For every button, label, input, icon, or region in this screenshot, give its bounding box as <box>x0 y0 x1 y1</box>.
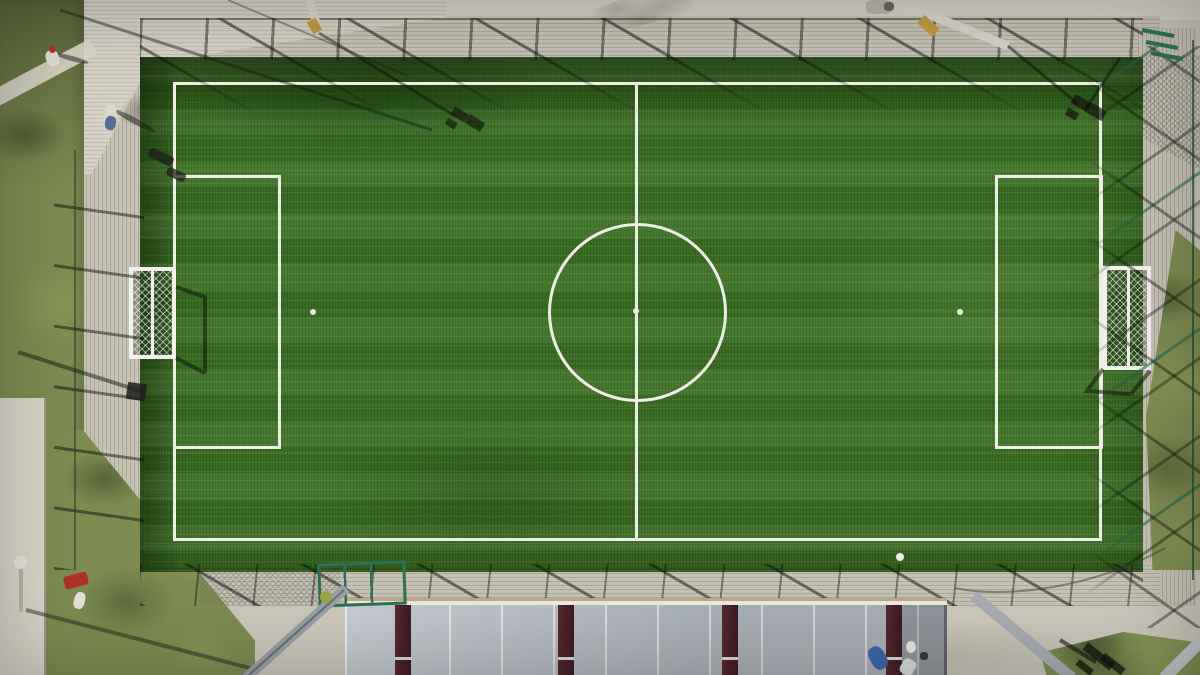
fence-rail-top <box>140 18 1143 20</box>
footpath-left <box>0 398 46 675</box>
aerial-soccer-field-photo <box>0 0 1200 675</box>
fence-rail-left <box>74 150 76 570</box>
canopy-roof <box>345 598 947 675</box>
fence-and-shadows-right <box>1085 46 1200 628</box>
roof-beam <box>722 605 738 675</box>
fence-rail-bottom <box>140 568 1143 570</box>
penalty-spot-left <box>310 309 316 315</box>
fence-post-shadows-top <box>140 18 1143 60</box>
roof-panels <box>345 605 947 675</box>
fence-shadows-left <box>54 170 144 570</box>
roof-shaded-section <box>900 605 947 675</box>
penalty-spot-right <box>957 309 963 315</box>
center-spot <box>633 308 639 314</box>
roof-beam <box>395 605 411 675</box>
roof-fascia <box>345 598 947 605</box>
roof-beam <box>886 605 902 675</box>
penalty-area-left <box>173 175 281 449</box>
green-gate-bottom-left <box>317 560 406 607</box>
roof-beam <box>558 605 574 675</box>
fence-rail-right <box>1192 40 1194 580</box>
